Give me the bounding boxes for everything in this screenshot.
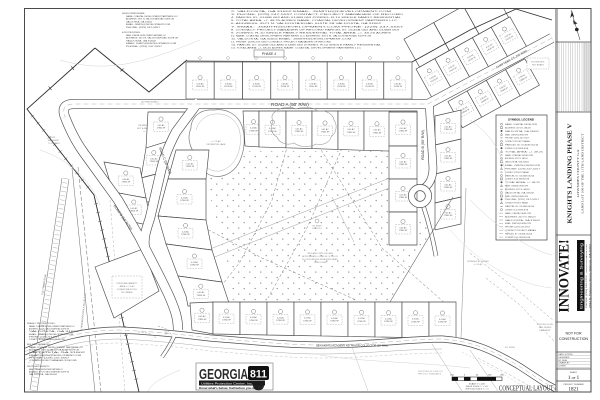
svg-text:0.41 AC: 0.41 AC (399, 193, 407, 196)
svg-text:PARCEL ID: 0146B 062 A: PARCEL ID: 0146B 062 A (505, 144, 539, 147)
svg-text:CONSTRUCTION: CONSTRUCTION (559, 337, 588, 341)
svg-text:ADDRESS: 4571 N. VALDOSTA ROAD: ADDRESS: 4571 N. VALDOSTA ROAD SUITE 2B (29, 328, 69, 331)
svg-text:17860 SF: 17860 SF (249, 320, 258, 322)
svg-text:VALDOSTA, GA 31602: VALDOSTA, GA 31602 (505, 130, 540, 133)
svg-text:15246 SF: 15246 SF (394, 86, 403, 88)
svg-text:9. ZONING: R-10 SINGLE FAMILY: 9. ZONING: R-10 SINGLE FAMILY RESIDENTIA… (231, 31, 392, 34)
svg-text:FLOODPLAIN PER FEMA FIRM PANEL: FLOODPLAIN PER FEMA FIRM PANEL (302, 258, 339, 261)
svg-text:ADDRESS: 4571 N. VALDO: ADDRESS: 4571 N. VALDO (505, 157, 528, 160)
svg-text:ROAD A (50' R/W): ROAD A (50' R/W) (271, 102, 309, 107)
svg-text:SCALE 1" = 100': SCALE 1" = 100' (469, 382, 486, 385)
svg-text:0.35 AC: 0.35 AC (394, 82, 402, 85)
svg-text:WETLANDS PER GIS DATA: WETLANDS PER GIS DATA (307, 252, 333, 255)
svg-text:0.41 AC: 0.41 AC (412, 318, 420, 321)
svg-text:DEVELOPER/OWNER:: DEVELOPER/OWNER: (122, 13, 145, 15)
svg-text:17860 SF: 17860 SF (399, 164, 408, 166)
svg-text:ADDRESS: 4571 N. VALDOSTA ROAD: ADDRESS: 4571 N. VALDOSTA ROAD SUITE 2B (126, 37, 179, 40)
svg-text:PHASE V PROPERTY INFO:: PHASE V PROPERTY INFO: (27, 322, 56, 325)
svg-text:0.35 AC: 0.35 AC (338, 82, 346, 85)
svg-text:EX. DRIVE: EX. DRIVE (505, 347, 516, 349)
svg-text:NAME: COASTAL DEVELOPMENT PART: NAME: COASTAL DEVELOPMENT PARTNERS LLC (126, 15, 178, 18)
svg-text:BY OWNER: BY OWNER (122, 292, 133, 294)
svg-text:+/- 6.8 AC: +/- 6.8 AC (474, 263, 484, 266)
svg-text:0.41 AC: 0.41 AC (181, 196, 189, 199)
svg-text:7. EMAIL: JSMITH@DEVELOPMENT.C: 7. EMAIL: JSMITH@DEVELOPMENT.COM PHONE: … (231, 25, 405, 28)
svg-text:2 BR/W: 2 BR/W (48, 137, 55, 139)
svg-text:CONTACT: PROJECT MANAGER OF RE: CONTACT: PROJECT MANAGER OF RECORD (29, 338, 65, 341)
svg-text:CONTACT: PROJECT MANAGER OF RE: CONTACT: PROJECT MANAGER OF RECORD (29, 359, 77, 362)
svg-text:PHONE: (229) 247-5557: PHONE: (229) 247-5557 (505, 227, 531, 229)
svg-text:1821: 1821 (569, 388, 580, 393)
svg-text:PER GDOT STANDARDS: PER GDOT STANDARDS (418, 373, 442, 376)
svg-text:17860 SF: 17860 SF (357, 321, 366, 323)
svg-text:0.35 AC: 0.35 AC (281, 82, 289, 85)
svg-text:PARCEL ID: 0146B 062 A: PARCEL ID: 0146B 062 A (505, 174, 535, 177)
svg-text:17860 SF: 17860 SF (196, 295, 205, 297)
svg-text:NAME: COASTAL DEVELOPMENT PART: NAME: COASTAL DEVELOPMENT PARTNERS LLC (126, 34, 166, 37)
svg-text:LOWNDES COUNTY GA: LOWNDES COUNTY GA (576, 148, 580, 197)
svg-text:NAME: COASTAL DEVELOPM: NAME: COASTAL DEVELOPM (505, 123, 537, 126)
svg-text:KNIGHTS LANDING PHASE V: KNIGHTS LANDING PHASE V (568, 123, 574, 224)
svg-text:17860 SF: 17860 SF (444, 187, 453, 189)
svg-text:0.35 AC: 0.35 AC (225, 82, 233, 85)
svg-text:NAME: COASTAL DEVELOPMENT PART: NAME: COASTAL DEVELOPMENT PARTNERS LLC (29, 325, 75, 328)
svg-text:VALDOSTA, GA 31602: VALDOSTA, GA 31602 (29, 330, 81, 333)
svg-text:0.41 AC: 0.41 AC (250, 127, 258, 130)
svg-text:17860 SF: 17860 SF (157, 128, 166, 130)
svg-text:Engineering & Surveying: Engineering & Surveying (578, 243, 583, 309)
svg-text:NAME: COASTAL DEVELOPM: NAME: COASTAL DEVELOPM (505, 154, 533, 157)
svg-text:NAME: COASTAL DEVELOPMENT PART: NAME: COASTAL DEVELOPMENT PARTNERS LLC (29, 368, 63, 371)
svg-text:ADDRESS: 4571 N. VALDOSTA ROAD: ADDRESS: 4571 N. VALDOSTA ROAD SUITE 2B (29, 371, 69, 374)
svg-text:ADDRESS: 4571 N. VALDOSTA ROAD: ADDRESS: 4571 N. VALDOSTA ROAD SUITE 2B (29, 349, 80, 352)
svg-text:0.41 AC: 0.41 AC (444, 154, 452, 157)
svg-text:BUILDING SETBACKS:: BUILDING SETBACKS: (27, 343, 51, 346)
svg-text:PARCEL ID: 0146B 062 A: PARCEL ID: 0146B 062 A (505, 232, 533, 235)
svg-text:CLUBHOUSE & POOL: CLUBHOUSE & POOL (117, 289, 138, 291)
svg-text:SE KNIGHTS ACADEMY RD. MINOR C: SE KNIGHTS ACADEMY RD. MINOR COLLECTOR (… (316, 344, 388, 348)
svg-text:CONTACT: PROJECT MANAG: CONTACT: PROJECT MANAG (505, 229, 536, 232)
svg-text:0.35 AC: 0.35 AC (310, 82, 318, 85)
svg-text:0.41 AC: 0.41 AC (186, 162, 194, 165)
svg-text:ZONING: R-10 SINGLE FA: ZONING: R-10 SINGLE FA (505, 209, 529, 212)
svg-text:0.41 AC: 0.41 AC (385, 317, 393, 320)
svg-text:17860 SF: 17860 SF (399, 131, 408, 133)
svg-text:VALDOSTA, GA 31602: VALDOSTA, GA 31602 (126, 20, 153, 23)
svg-text:DETENTION LAKE: DETENTION LAKE (207, 143, 226, 146)
svg-text:Know what's below. Call before: Know what's below. Call before you dig. (199, 386, 258, 390)
svg-text:VALDOSTA, GA 31602: VALDOSTA, GA 31602 (505, 191, 535, 194)
svg-text:0.41 AC: 0.41 AC (197, 291, 205, 294)
svg-text:RIM 212.4: RIM 212.4 (312, 228, 322, 230)
svg-text:15246 SF: 15246 SF (252, 86, 261, 88)
svg-text:0.41 AC: 0.41 AC (269, 127, 277, 130)
svg-text:0.41 AC: 0.41 AC (347, 128, 355, 131)
svg-text:0.41 AC: 0.41 AC (373, 129, 381, 132)
svg-text:17860 SF: 17860 SF (444, 215, 453, 217)
svg-text:8. CONTACT: PROJECT MANAGER OF: 8. CONTACT: PROJECT MANAGER OF RECORD PA… (231, 28, 400, 31)
svg-text:0.41 AC: 0.41 AC (157, 124, 165, 127)
svg-text:0.41 AC: 0.41 AC (150, 157, 158, 160)
svg-text:10. NAME: COASTAL DEVELOPMENT: 10. NAME: COASTAL DEVELOPMENT PARTNERS L… (231, 35, 372, 38)
svg-text:EXISTING 20 MH: EXISTING 20 MH (537, 324, 553, 326)
svg-text:17860 SF: 17860 SF (249, 130, 258, 132)
svg-text:EMAIL: JSMITH@DEVELOPMENT.COM: EMAIL: JSMITH@DEVELOPMENT.COM (126, 42, 176, 45)
svg-text:EMAIL: JSMITH@DEVELOPM: EMAIL: JSMITH@DEVELOPM (505, 164, 540, 167)
svg-text:SHEET: SHEET (570, 372, 578, 374)
svg-text:0.41 AC: 0.41 AC (250, 316, 258, 319)
svg-text:LAND LOT 106 OF THE 11TH LAND: LAND LOT 106 OF THE 11TH LAND DISTRICT (581, 133, 585, 213)
svg-text:17860 SF: 17860 SF (149, 161, 158, 163)
svg-text:0.41 AC: 0.41 AC (399, 226, 407, 229)
svg-text:VALDOSTA, GA 31602: VALDOSTA, GA 31602 (505, 161, 530, 164)
svg-text:CONTACT: PROJECT MANAG: CONTACT: PROJECT MANAG (505, 171, 529, 174)
svg-text:EMAIL: JSMITH@DEVELOPMENT.COM: EMAIL: JSMITH@DEVELOPMENT.COM (29, 333, 73, 336)
svg-text:17860 SF: 17860 SF (399, 230, 408, 232)
svg-text:E-911 PROVIDER:: E-911 PROVIDER: (122, 32, 141, 34)
svg-text:15246 SF: 15246 SF (224, 86, 233, 88)
svg-text:NOT FOR: NOT FOR (565, 332, 582, 336)
svg-text:PHONE: (229) 247-5557: PHONE: (229) 247-5557 (505, 199, 540, 201)
svg-text:CONCEPTUAL LAYOUT 4: CONCEPTUAL LAYOUT 4 (499, 385, 557, 393)
svg-text:0.41 AC: 0.41 AC (304, 317, 312, 320)
svg-text:17860 SF: 17860 SF (276, 320, 285, 322)
svg-text:PHONE (229) 549-0113 - www.i: PHONE (229) 549-0113 - www.innovatees.co… (585, 244, 588, 308)
svg-text:17860 SF: 17860 SF (181, 234, 190, 236)
svg-text:FUTURE DEV.: FUTURE DEV. (531, 62, 545, 64)
svg-text:0.41 AC: 0.41 AC (198, 315, 206, 318)
svg-text:ADDRESS: 4571 N. VALDOSTA ROAD: ADDRESS: 4571 N. VALDOSTA ROAD SUITE 2B (126, 18, 175, 21)
svg-text:14. TOTAL AREA: +/- 48.25 ACRE: 14. TOTAL AREA: +/- 48.25 ACRES NAME: CO… (231, 47, 362, 50)
svg-text:2814 N. Patterson Street, Vald: 2814 N. Patterson Street, Valdosta, GA 3… (588, 243, 591, 308)
svg-text:0.41 AC: 0.41 AC (444, 211, 452, 214)
svg-text:811: 811 (250, 369, 267, 381)
svg-text:CONTACT: PROJECT MANAG: CONTACT: PROJECT MANAG (505, 202, 528, 205)
svg-text:0.41 AC: 0.41 AC (358, 317, 366, 320)
svg-text:0.41 AC: 0.41 AC (321, 128, 329, 131)
svg-text:17860 SF: 17860 SF (185, 166, 194, 168)
svg-text:PHONE: (229) 247-5557: PHONE: (229) 247-5557 (126, 27, 161, 29)
svg-text:13. PARCEL ID: 0146B 062 AND 0: 13. PARCEL ID: 0146B 062 AND 0146B 063 Z… (231, 44, 382, 47)
svg-text:17860 SF: 17860 SF (330, 321, 339, 323)
svg-text:EMAIL: JSMITH@DEVELOPMENT.COM: EMAIL: JSMITH@DEVELOPMENT.COM (29, 354, 81, 357)
svg-text:EASEMENT: EASEMENT (539, 329, 551, 332)
svg-text:ADDRESS: 4571 N. VALDO: ADDRESS: 4571 N. VALDO (505, 188, 530, 191)
svg-text:VALDOSTA, GA 31602: VALDOSTA, GA 31602 (29, 373, 58, 376)
svg-text:6. ADDRESS: 4571 N. VALDOSTA R: 6. ADDRESS: 4571 N. VALDOSTA ROAD SUITE … (231, 22, 383, 25)
svg-text:VALDOSTA, GA 31602: VALDOSTA, GA 31602 (29, 351, 87, 354)
svg-text:17860 SF: 17860 SF (190, 265, 199, 267)
svg-text:4. PARCEL ID: 0146B 062 AND 01: 4. PARCEL ID: 0146B 062 AND 0146B 063 ZO… (231, 16, 402, 19)
svg-text:0.41 AC: 0.41 AC (182, 230, 190, 233)
svg-text:0.41 AC: 0.41 AC (444, 183, 452, 186)
svg-text:EASEMENT: EASEMENT (48, 139, 60, 142)
svg-text:0.41 AC: 0.41 AC (277, 316, 285, 319)
svg-text:17860 SF: 17860 SF (295, 131, 304, 133)
svg-text:0.41 AC: 0.41 AC (439, 318, 447, 321)
svg-text:11. VALDOSTA, GA 31602 EMAIL:: 11. VALDOSTA, GA 31602 EMAIL: JSMITH@DEV… (231, 38, 351, 41)
svg-text:ZONING: R-10 SINGLE FA: ZONING: R-10 SINGLE FA (505, 236, 531, 239)
svg-text:ZONING: R-10 SINGLE FA: ZONING: R-10 SINGLE FA (505, 147, 529, 150)
svg-text:PHASE 4: PHASE 4 (262, 52, 276, 56)
svg-text:0.35 AC: 0.35 AC (366, 82, 374, 85)
svg-text:15246 SF: 15246 SF (196, 86, 205, 88)
svg-text:NAME: COASTAL DEVELOPM: NAME: COASTAL DEVELOPM (505, 185, 528, 188)
svg-text:TOTAL AREA: +/- 48.25: TOTAL AREA: +/- 48.25 (505, 181, 541, 184)
svg-text:ROAD B (50' R/W): ROAD B (50' R/W) (421, 130, 425, 160)
svg-text:17860 SF: 17860 SF (399, 197, 408, 199)
svg-text:(50' R/W) PUBLIC: (50' R/W) PUBLIC (141, 102, 159, 104)
svg-text:17860 SF: 17860 SF (411, 321, 420, 323)
svg-text:+/- 7.5 AC: +/- 7.5 AC (211, 140, 221, 143)
svg-text:5. TOTAL AREA: +/- 48.25 ACRES: 5. TOTAL AREA: +/- 48.25 ACRES NAME: COA… (231, 19, 398, 22)
svg-text:PROPOSED DENSITY:: PROPOSED DENSITY: (27, 366, 50, 368)
svg-text:17860 SF: 17860 SF (444, 158, 453, 160)
svg-text:PHONE: (229) 247-5557: PHONE: (229) 247-5557 (126, 46, 163, 48)
svg-text:0.41 AC: 0.41 AC (223, 316, 231, 319)
svg-text:0.41 AC: 0.41 AC (399, 160, 407, 163)
svg-text:VALDOSTA, GA 31602: VALDOSTA, GA 31602 (505, 219, 542, 222)
svg-text:17860 SF: 17860 SF (384, 321, 393, 323)
svg-text:EMAIL: JSMITH@DEVELOPMENT.COM: EMAIL: JSMITH@DEVELOPMENT.COM (126, 23, 170, 26)
svg-text:PARCEL ID: 0146B 062 A: PARCEL ID: 0146B 062 A (505, 205, 535, 208)
svg-text:17860 SF: 17860 SF (268, 131, 277, 133)
svg-text:3. PHONE: (229) 247-5557 CONTA: 3. PHONE: (229) 247-5557 CONTACT: PROJEC… (231, 13, 404, 16)
svg-text:SYMBOL LEGEND: SYMBOL LEGEND (508, 118, 535, 122)
svg-text:ZONING: R-10 SINGLE FA: ZONING: R-10 SINGLE FA (505, 178, 530, 181)
svg-text:EMAIL: JSMITH@DEVELOPM: EMAIL: JSMITH@DEVELOPM (505, 222, 531, 225)
svg-text:NAME: COASTAL DEVELOPMENT PART: NAME: COASTAL DEVELOPMENT PARTNERS LLC (29, 346, 83, 349)
svg-text:VERTICAL SCALE: 1" = 0': VERTICAL SCALE: 1" = 0' (465, 387, 489, 390)
svg-text:12. PHONE: (229) 247-5557 CONT: 12. PHONE: (229) 247-5557 CONTACT: PROJE… (231, 41, 332, 44)
svg-text:13185C0145E: 13185C0145E (314, 262, 327, 264)
svg-text:TOTAL AREA: +/- 48.25: TOTAL AREA: +/- 48.25 (505, 150, 545, 153)
svg-text:17860 SF: 17860 SF (222, 320, 231, 322)
svg-text:NAME: COASTAL DEVELOPM: NAME: COASTAL DEVELOPM (505, 212, 531, 215)
svg-text:15246 SF: 15246 SF (281, 86, 290, 88)
svg-text:PROPOSED AMENITY: PROPOSED AMENITY (117, 282, 138, 285)
svg-text:17860 SF: 17860 SF (321, 132, 330, 134)
svg-text:0.41 AC: 0.41 AC (122, 178, 130, 181)
svg-text:CONTACT: PROJECT MANAG: CONTACT: PROJECT MANAG (505, 140, 530, 143)
svg-text:PHONE: (229) 247-5557: PHONE: (229) 247-5557 (505, 138, 530, 140)
svg-text:Utilities Protection Center, I: Utilities Protection Center, Inc. (201, 381, 253, 385)
svg-text:15246 SF: 15246 SF (337, 86, 346, 88)
svg-text:PHONE: (229) 247-5557: PHONE: (229) 247-5557 (505, 169, 541, 171)
svg-text:17860 SF: 17860 SF (444, 129, 453, 131)
svg-text:EMAIL: JSMITH@DEVELOPM: EMAIL: JSMITH@DEVELOPM (505, 195, 528, 198)
svg-text:0.35 AC: 0.35 AC (197, 82, 205, 85)
svg-text:INNOVATE!: INNOVATE! (557, 240, 573, 313)
svg-text:0.41 AC: 0.41 AC (399, 127, 407, 130)
svg-text:17860 SF: 17860 SF (303, 321, 312, 323)
svg-text:APPROXIMATE LOCATION OF 100 YR: APPROXIMATE LOCATION OF 100 YR (302, 255, 338, 258)
svg-text:0.41 AC: 0.41 AC (444, 125, 452, 128)
svg-text:SAN. SEWER: SAN. SEWER (539, 326, 552, 329)
svg-text:17860 SF: 17860 SF (198, 319, 207, 321)
svg-text:VALDOSTA, GA 31602: VALDOSTA, GA 31602 (126, 39, 157, 42)
svg-text:15246 SF: 15246 SF (309, 86, 318, 88)
svg-text:17860 SF: 17860 SF (438, 322, 447, 324)
svg-text:AREA +/- 1.2 AC: AREA +/- 1.2 AC (120, 285, 135, 288)
svg-text:ADDRESS: 4571 N. VALDO: ADDRESS: 4571 N. VALDO (505, 215, 537, 218)
svg-text:NOT A PART: NOT A PART (532, 64, 544, 67)
svg-text:EMAIL: JSMITH@DEVELOPM: EMAIL: JSMITH@DEVELOPM (505, 133, 528, 136)
svg-text:17860 SF: 17860 SF (180, 200, 189, 202)
svg-text:0.41 AC: 0.41 AC (331, 317, 339, 320)
svg-text:0.41 AC: 0.41 AC (295, 127, 303, 130)
svg-text:15246 SF: 15246 SF (365, 86, 374, 88)
svg-text:2. VALDOSTA, GA 31602 EMAIL: J: 2. VALDOSTA, GA 31602 EMAIL: JSMITH@DEVE… (231, 10, 391, 13)
svg-text:PROJECT NUMBER: PROJECT NUMBER (563, 384, 584, 386)
svg-text:17860 SF: 17860 SF (121, 182, 130, 184)
svg-text:0.35 AC: 0.35 AC (253, 82, 261, 85)
svg-text:0.41 AC: 0.41 AC (130, 207, 138, 210)
svg-text:ADDRESS: 4571 N. VALDO: ADDRESS: 4571 N. VALDO (505, 126, 531, 129)
svg-text:17860 SF: 17860 SF (347, 132, 356, 134)
svg-text:17860 SF: 17860 SF (373, 132, 382, 134)
svg-text:TO REMAIN: TO REMAIN (48, 142, 60, 145)
svg-text:0.41 AC: 0.41 AC (191, 261, 199, 264)
